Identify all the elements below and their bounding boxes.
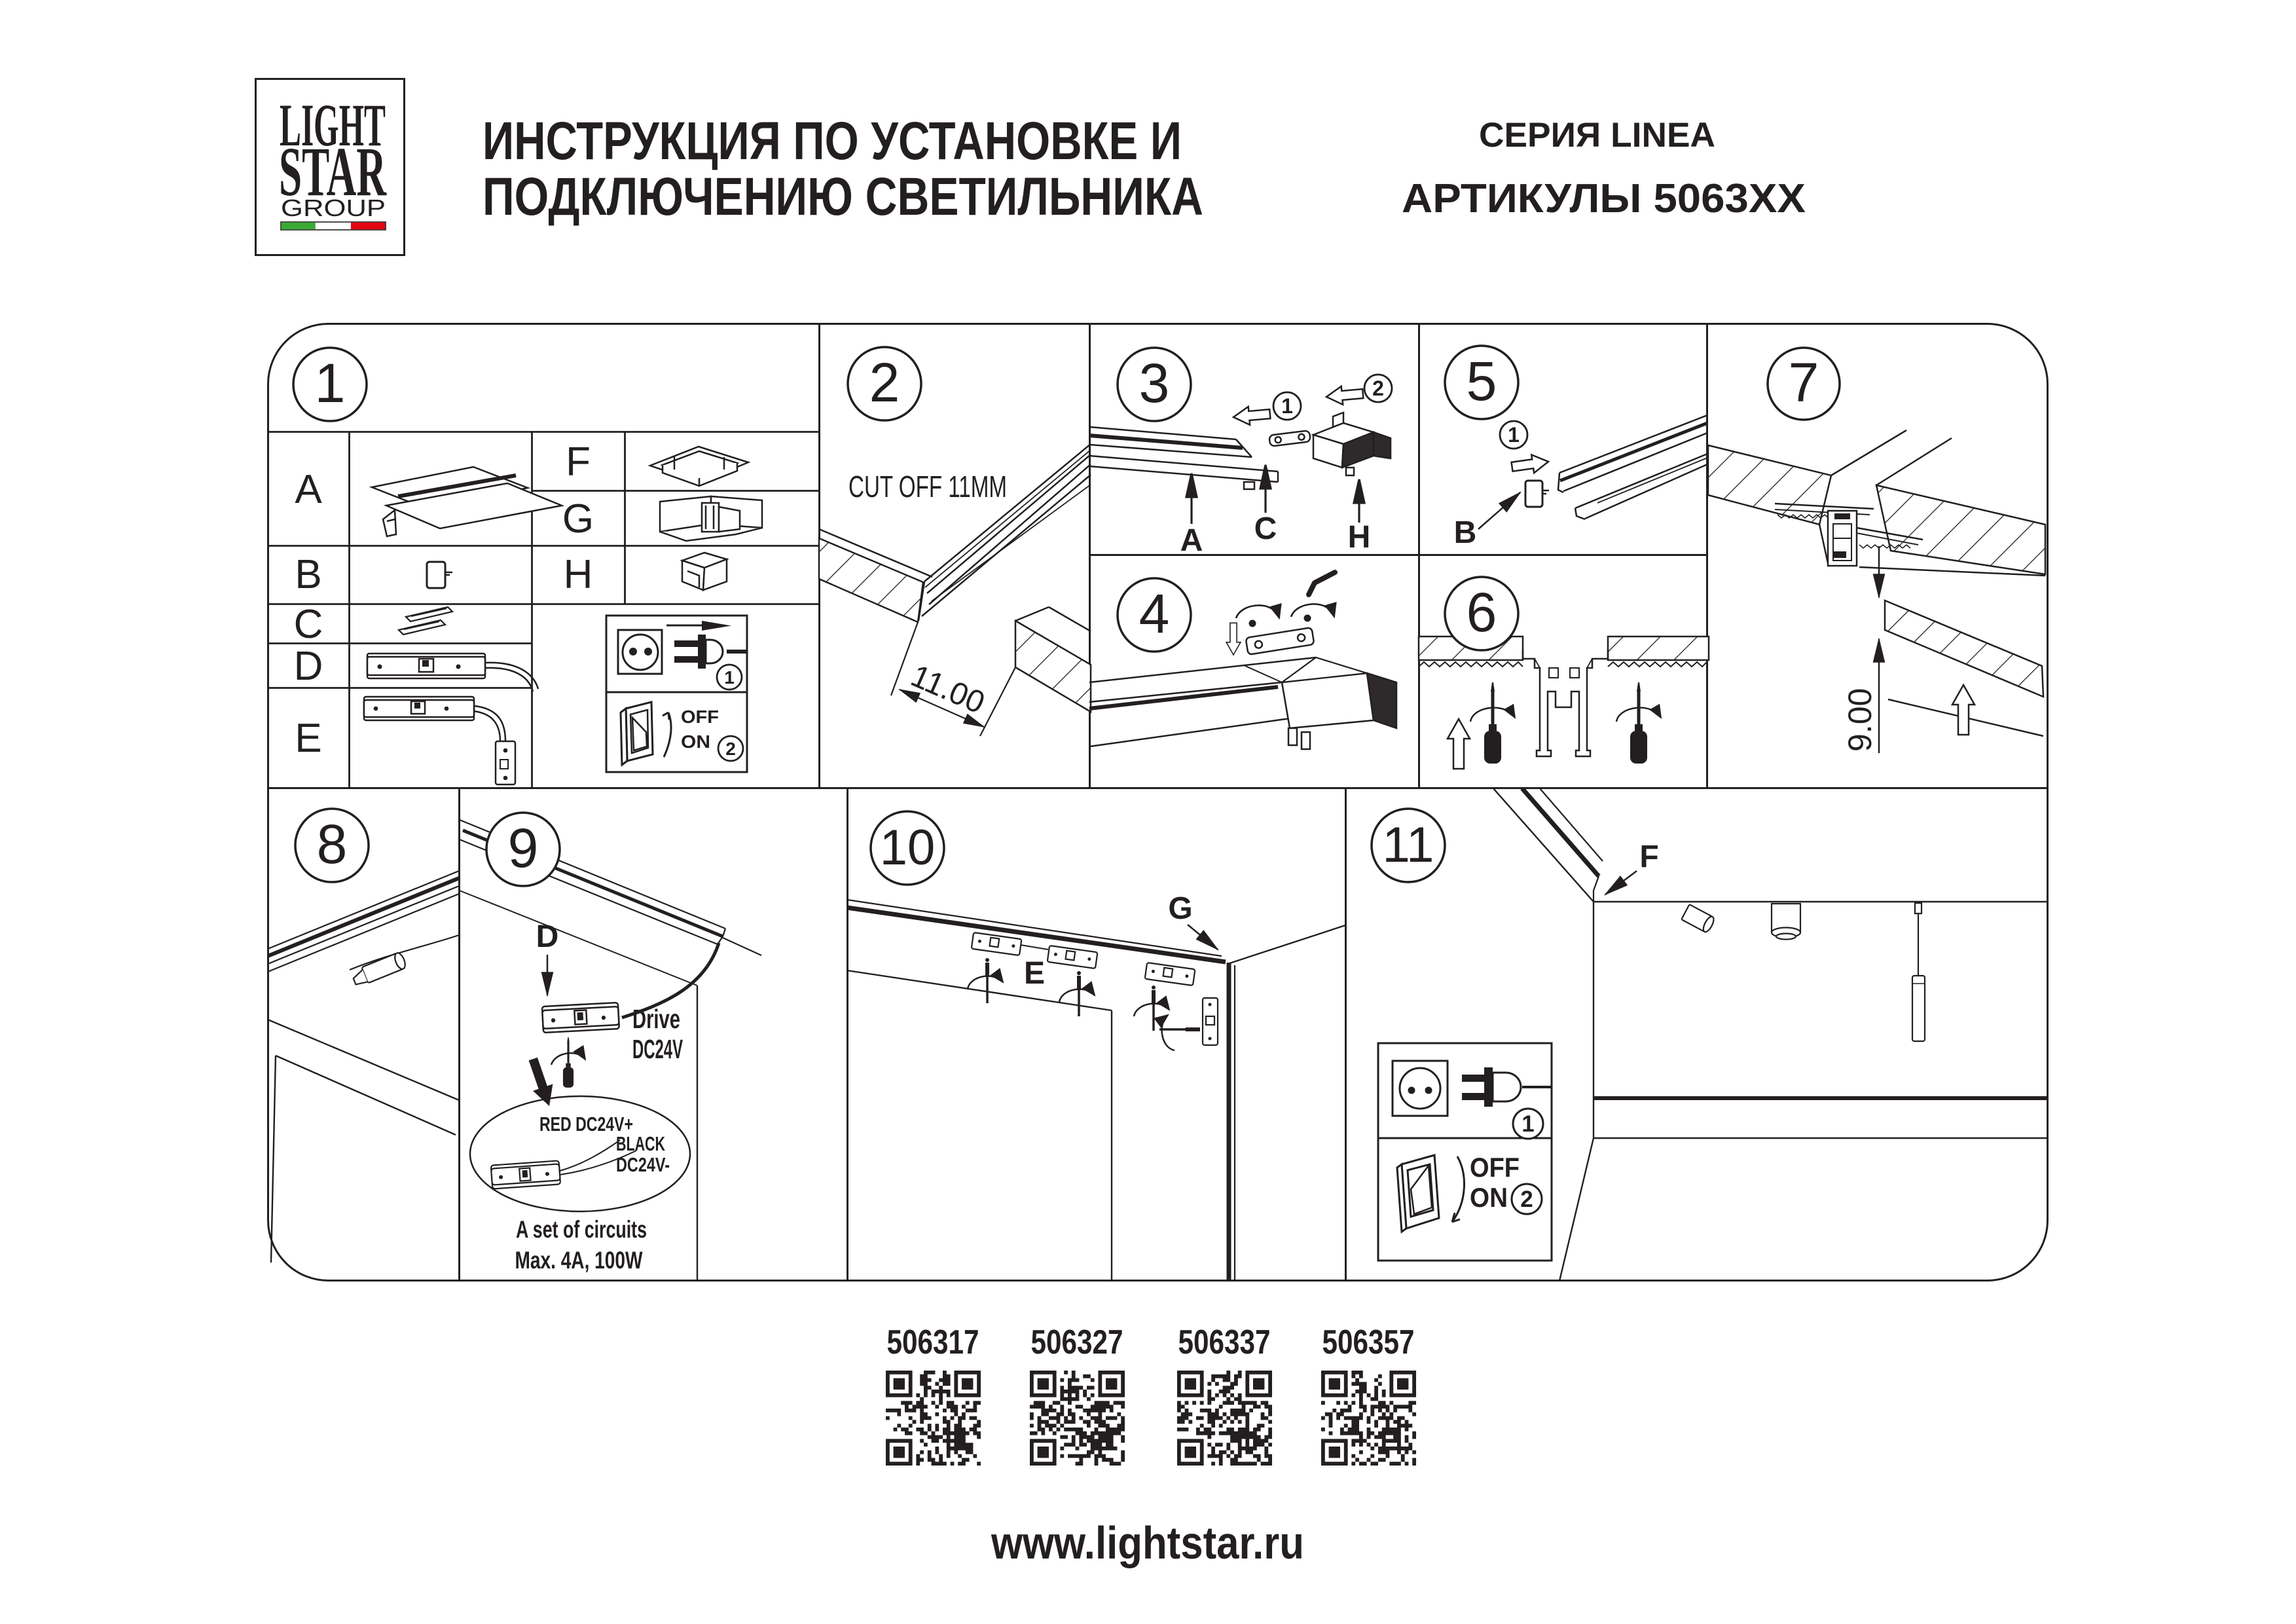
svg-text:5: 5 [1467,350,1497,412]
svg-text:D: D [536,919,559,954]
svg-text:9.00: 9.00 [1842,688,1878,752]
svg-text:E: E [1024,956,1045,991]
svg-text:B: B [295,552,321,597]
svg-text:506317: 506317 [887,1323,979,1361]
svg-text:E: E [295,716,321,761]
svg-text:DC24V-: DC24V- [616,1153,670,1176]
svg-text:7: 7 [1789,352,1819,413]
svg-text:506357: 506357 [1322,1323,1415,1361]
svg-text:ИНСТРУКЦИЯ ПО УСТАНОВКЕ И: ИНСТРУКЦИЯ ПО УСТАНОВКЕ И [483,111,1182,171]
svg-text:6: 6 [1467,581,1497,643]
svg-text:OFF: OFF [681,707,719,727]
svg-text:1: 1 [724,667,735,688]
svg-text:2: 2 [869,352,900,413]
svg-text:ON: ON [681,731,710,752]
svg-text:506327: 506327 [1031,1323,1123,1361]
svg-text:Drive: Drive [632,1004,680,1034]
svg-text:2: 2 [1372,377,1384,400]
svg-text:4: 4 [1139,583,1170,644]
svg-text:C: C [294,602,323,647]
svg-text:F: F [1639,840,1658,874]
svg-text:АРТИКУЛЫ 5063ХХ: АРТИКУЛЫ 5063ХХ [1402,176,1806,221]
svg-text:10: 10 [880,820,936,876]
svg-text:3: 3 [1139,352,1170,414]
svg-text:H: H [1348,520,1371,555]
svg-text:D: D [294,644,323,689]
svg-text:GROUP: GROUP [281,194,386,221]
svg-text:C: C [1254,511,1277,546]
svg-text:A: A [1180,523,1203,558]
svg-text:A: A [295,467,322,512]
svg-text:H: H [564,552,593,597]
svg-text:BLACK: BLACK [616,1132,665,1155]
svg-text:1: 1 [315,352,346,414]
svg-text:B: B [1454,515,1477,550]
svg-text:2: 2 [1520,1187,1533,1212]
svg-text:СЕРИЯ LINEA: СЕРИЯ LINEA [1479,116,1715,155]
svg-text:ON: ON [1470,1182,1508,1213]
svg-text:A set of circuits: A set of circuits [516,1216,647,1243]
svg-text:G: G [1168,891,1192,926]
svg-text:DC24V: DC24V [632,1034,683,1064]
svg-text:G: G [562,496,594,542]
svg-text:11: 11 [1383,817,1434,873]
svg-text:Max. 4A, 100W: Max. 4A, 100W [515,1247,643,1274]
svg-text:F: F [566,439,591,485]
svg-text:9: 9 [508,817,539,879]
svg-text:OFF: OFF [1470,1152,1520,1183]
svg-text:ПОДКЛЮЧЕНИЮ СВЕТИЛЬНИКА: ПОДКЛЮЧЕНИЮ СВЕТИЛЬНИКА [483,167,1203,227]
svg-text:1: 1 [1522,1111,1534,1137]
svg-text:1: 1 [1508,423,1520,447]
svg-text:8: 8 [317,813,348,875]
svg-text:1: 1 [1281,394,1293,418]
svg-text:2: 2 [725,739,736,759]
svg-text:506337: 506337 [1178,1323,1271,1361]
svg-text:CUT OFF 11MM: CUT OFF 11MM [848,470,1007,504]
svg-text:www.lightstar.ru: www.lightstar.ru [991,1517,1304,1568]
